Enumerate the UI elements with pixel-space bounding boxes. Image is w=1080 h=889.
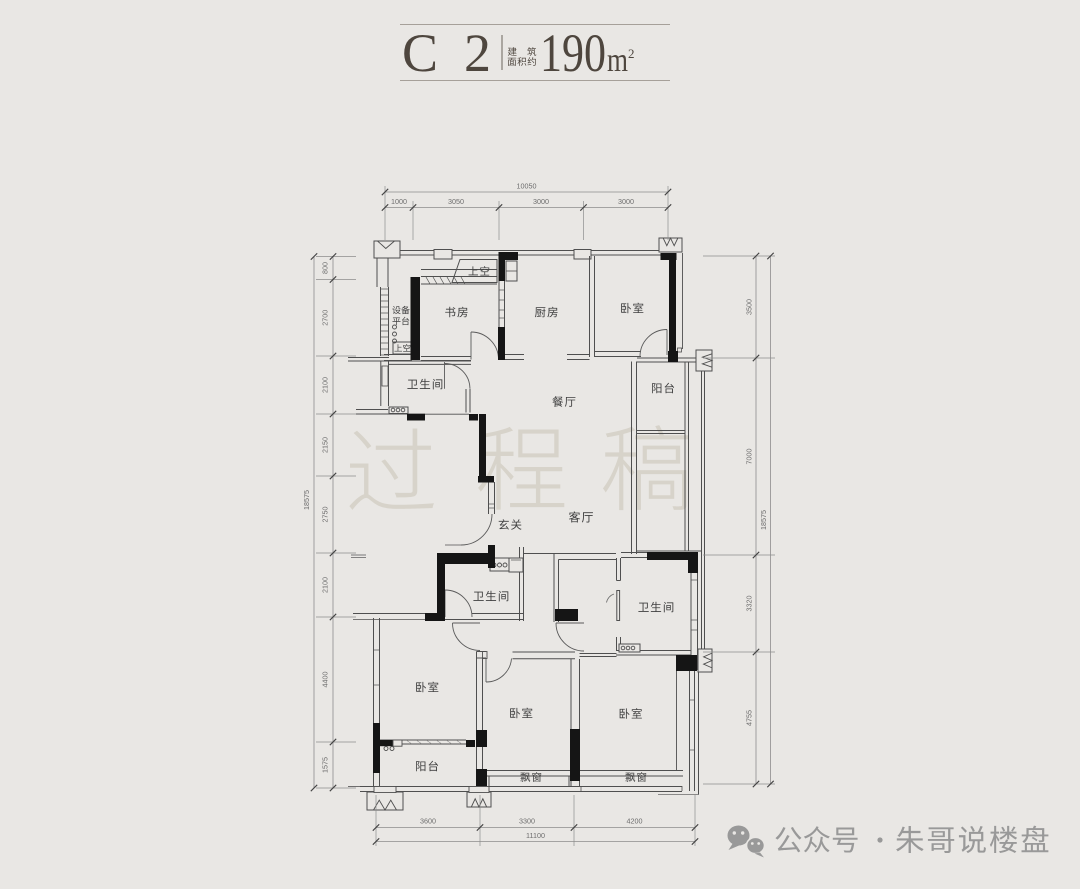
svg-text:3300: 3300 xyxy=(519,817,535,826)
svg-text:800: 800 xyxy=(321,262,330,274)
svg-text:m: m xyxy=(607,42,628,79)
svg-text:4200: 4200 xyxy=(627,817,643,826)
svg-text:2100: 2100 xyxy=(321,377,330,393)
svg-text:3600: 3600 xyxy=(420,817,436,826)
svg-text:7000: 7000 xyxy=(745,449,754,465)
svg-text:3000: 3000 xyxy=(533,197,549,206)
svg-text:1575: 1575 xyxy=(321,757,330,773)
svg-text:3050: 3050 xyxy=(448,197,464,206)
svg-text:11100: 11100 xyxy=(526,831,545,840)
svg-text:2700: 2700 xyxy=(321,310,330,326)
svg-text:190: 190 xyxy=(540,23,606,83)
svg-text:10050: 10050 xyxy=(517,182,537,191)
svg-text:1000: 1000 xyxy=(391,197,407,206)
svg-text:2150: 2150 xyxy=(321,437,330,453)
svg-text:3320: 3320 xyxy=(745,596,754,612)
svg-text:2: 2 xyxy=(628,46,635,61)
svg-text:4755: 4755 xyxy=(745,710,754,726)
svg-text:18575: 18575 xyxy=(759,510,768,530)
svg-text:4400: 4400 xyxy=(321,672,330,688)
svg-text:2750: 2750 xyxy=(321,507,330,523)
svg-text:2100: 2100 xyxy=(321,577,330,593)
svg-text:3500: 3500 xyxy=(745,299,754,315)
svg-text:3000: 3000 xyxy=(618,197,634,206)
svg-text:18575: 18575 xyxy=(302,490,311,510)
